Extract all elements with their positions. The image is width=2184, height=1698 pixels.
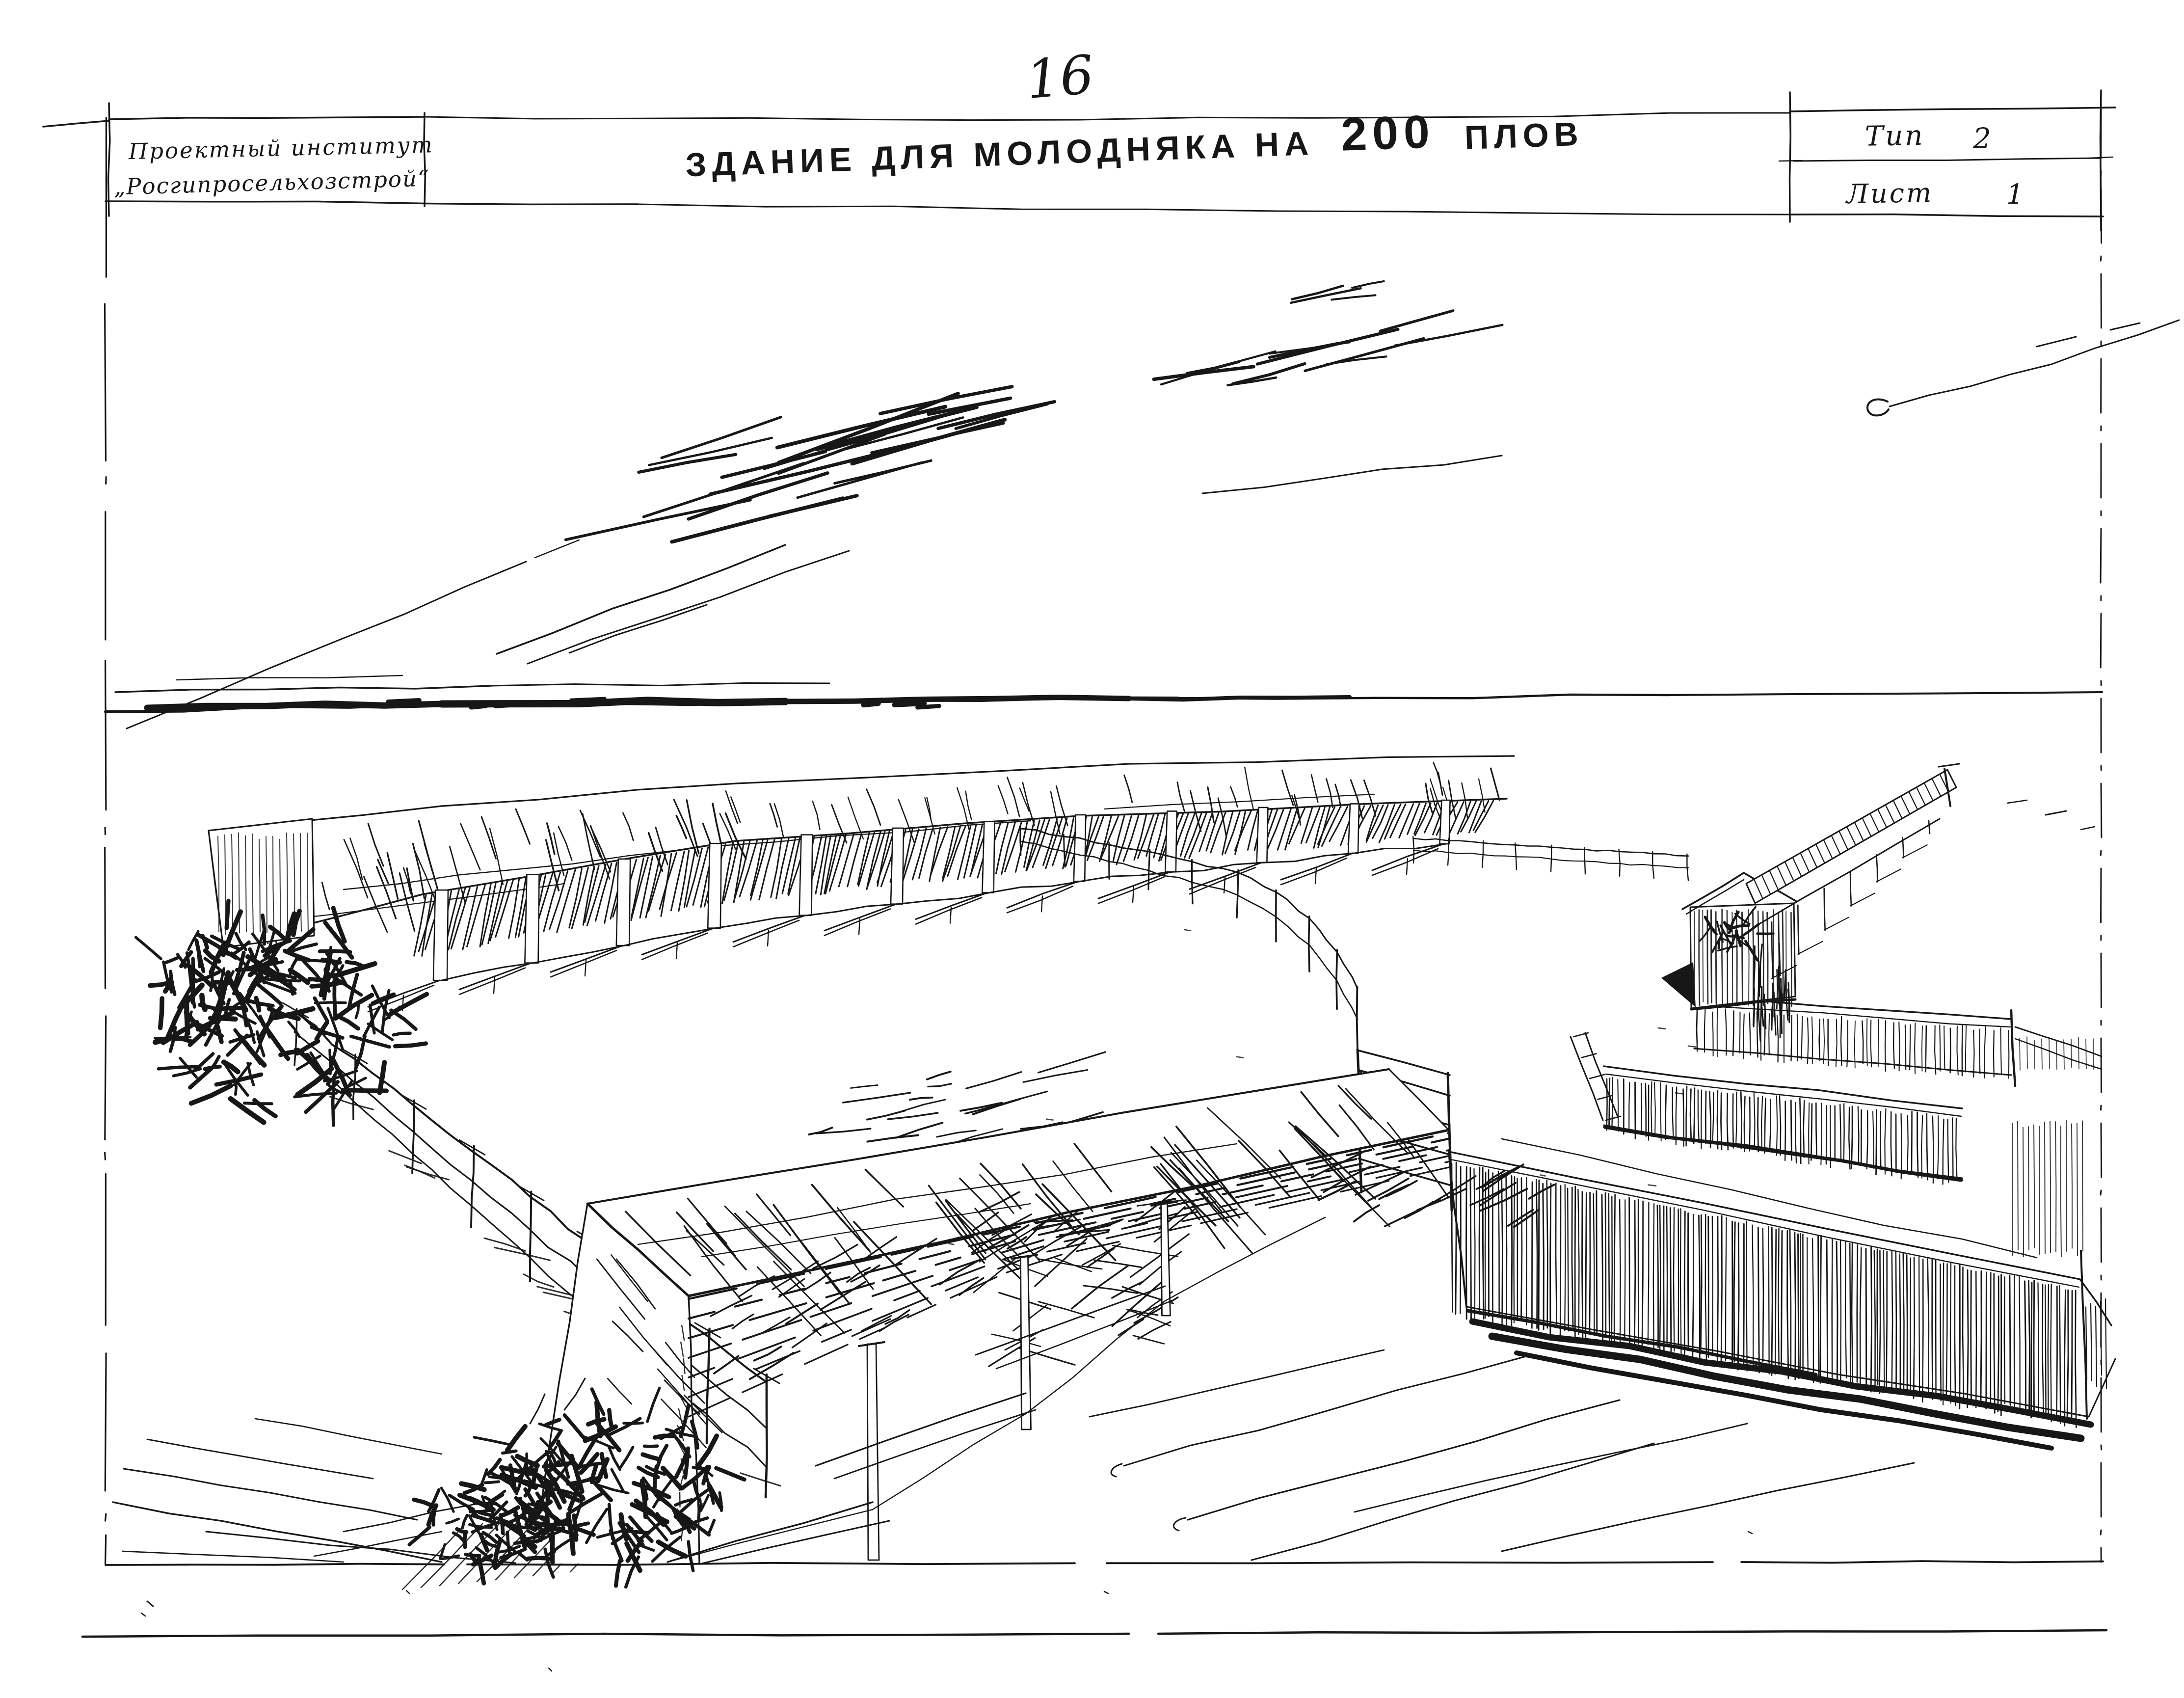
back-open-shed — [136, 756, 1514, 1125]
sky-scribbles — [127, 281, 2179, 728]
drawing-title-capacity: 200 — [1340, 106, 1436, 161]
stamp-type-label: Тип — [1864, 120, 1925, 153]
foreground-open-shed — [314, 1069, 1449, 1587]
drawing-title: ЗДАНИЕ ДЛЯ МОЛОДНЯКА НА 200 ПЛОВ — [684, 101, 1584, 184]
yard-fences — [1020, 800, 2095, 1050]
stamp-sheet-value: 1 — [2006, 179, 2024, 211]
stamp-type-value: 2 — [1972, 122, 1991, 155]
perspective-drawing: 16 Проектный институт „Росгипросельхозст… — [0, 0, 2184, 1698]
silage-walls-and-feed-house — [1449, 764, 2115, 1448]
institute-name-line2: „Росгипросельхозстрой“ — [113, 165, 430, 200]
page-number: 16 — [1024, 44, 1096, 111]
drawing-title-unit: ПЛОВ — [1464, 115, 1584, 157]
drawing-title-text: ЗДАНИЕ ДЛЯ МОЛОДНЯКА НА — [685, 125, 1314, 184]
drawing-sheet: 16 Проектный институт „Росгипросельхозст… — [0, 0, 2184, 1698]
stamp-sheet-label: Лист — [1844, 177, 1933, 210]
institute-name-line1: Проектный институт — [128, 132, 434, 164]
horizon-line — [106, 675, 2102, 712]
